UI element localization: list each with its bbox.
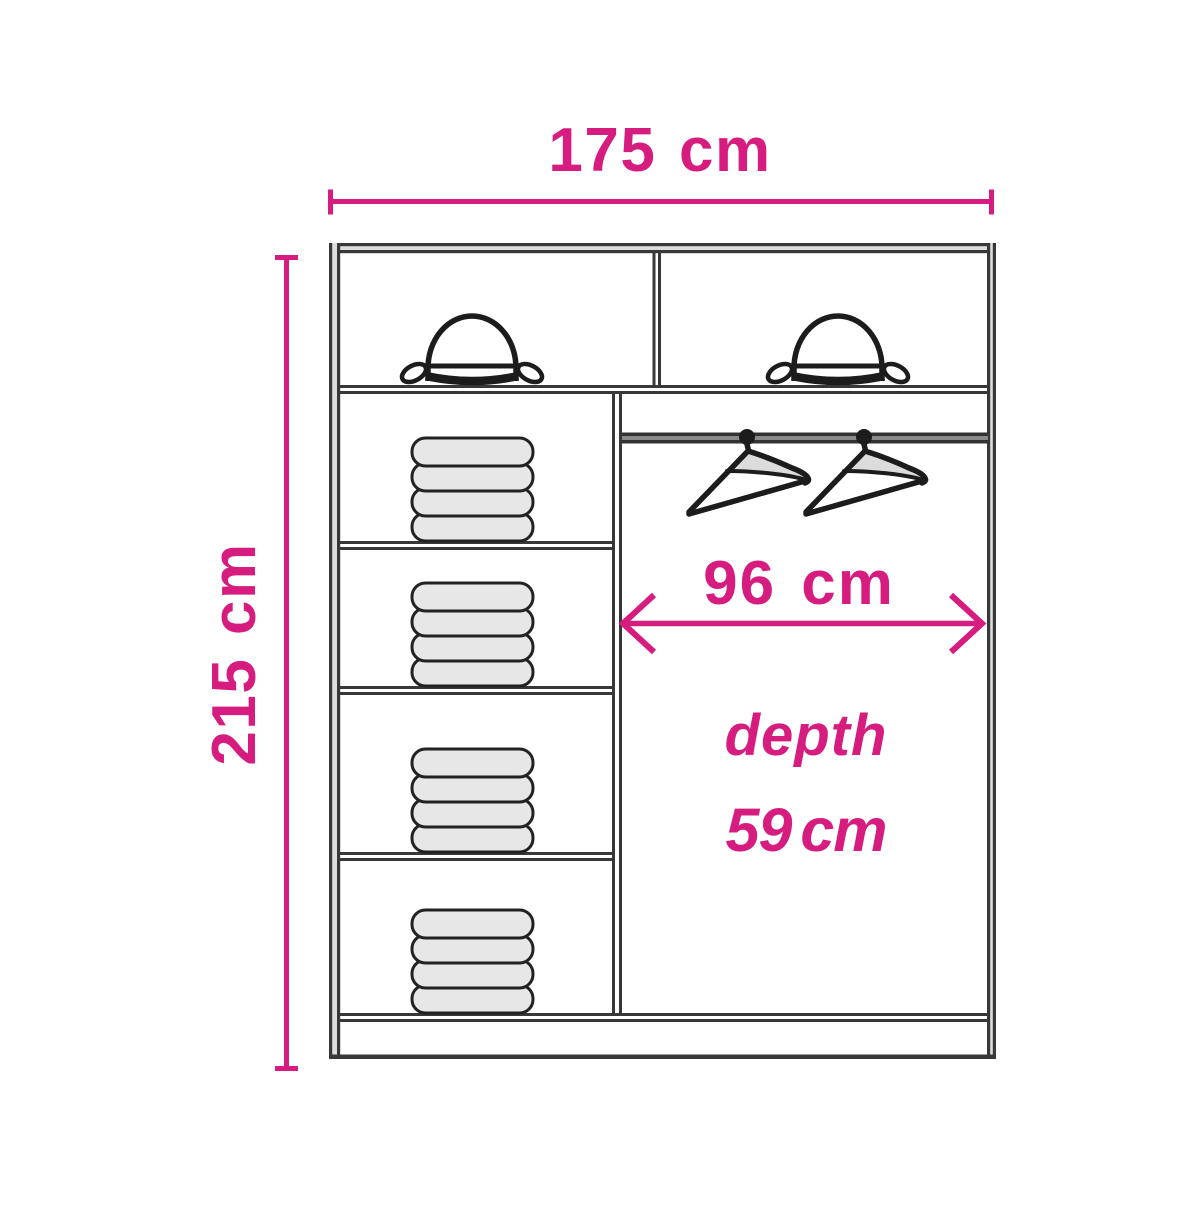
svg-text:215 cm: 215 cm [200,542,269,765]
svg-text:59 cm: 59 cm [726,796,887,864]
svg-text:depth: depth [725,703,888,768]
svg-text:175 cm: 175 cm [548,116,771,185]
svg-text:96 cm: 96 cm [703,549,895,618]
